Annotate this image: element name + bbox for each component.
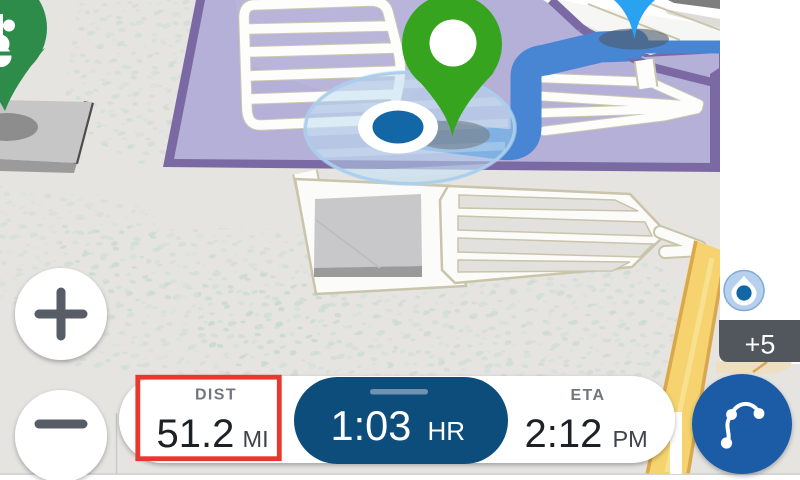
svg-text:MI: MI [243, 426, 269, 452]
svg-text:1:03: 1:03 [331, 402, 412, 449]
svg-text:+5: +5 [745, 330, 776, 360]
svg-text:HR: HR [428, 416, 466, 446]
svg-text:ETA: ETA [570, 387, 605, 404]
svg-text:2:12: 2:12 [525, 412, 603, 456]
svg-text:DIST: DIST [195, 387, 237, 404]
svg-text:51.2: 51.2 [157, 412, 235, 456]
svg-text:PM: PM [613, 426, 648, 452]
